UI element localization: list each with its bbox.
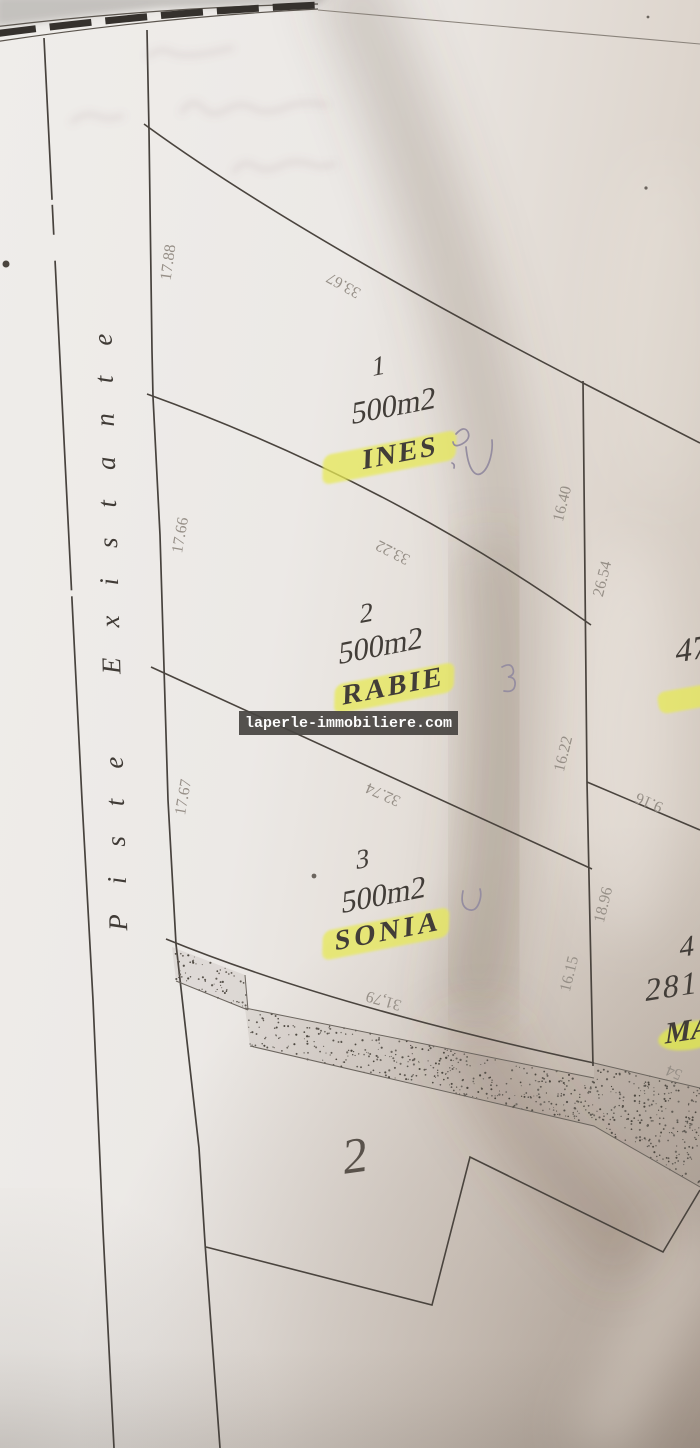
- svg-text:1: 1: [371, 349, 386, 382]
- svg-text:17.67: 17.67: [172, 778, 195, 816]
- svg-text:16.40: 16.40: [550, 484, 575, 523]
- svg-text:47: 47: [674, 628, 700, 671]
- svg-text:RABIE: RABIE: [342, 661, 445, 712]
- svg-text:16.22: 16.22: [551, 734, 576, 773]
- svg-text:33.67: 33.67: [324, 269, 364, 301]
- svg-text:33.22: 33.22: [373, 536, 413, 567]
- svg-text:MA: MA: [664, 1009, 700, 1051]
- svg-text:17.88: 17.88: [158, 243, 180, 281]
- svg-text:16.15: 16.15: [557, 954, 582, 993]
- svg-text:31,79: 31,79: [364, 987, 403, 1013]
- svg-text:32.74: 32.74: [363, 779, 403, 809]
- svg-text:500m2: 500m2: [337, 619, 424, 671]
- svg-text:281: 281: [643, 964, 700, 1009]
- svg-text:4: 4: [678, 930, 696, 965]
- svg-text:2: 2: [359, 596, 374, 629]
- svg-text:17.66: 17.66: [169, 516, 192, 554]
- svg-text:500m2: 500m2: [350, 379, 437, 431]
- svg-text:Piste Existante: Piste Existante: [87, 303, 133, 932]
- svg-text:2: 2: [338, 1126, 371, 1185]
- svg-text:3: 3: [355, 842, 370, 875]
